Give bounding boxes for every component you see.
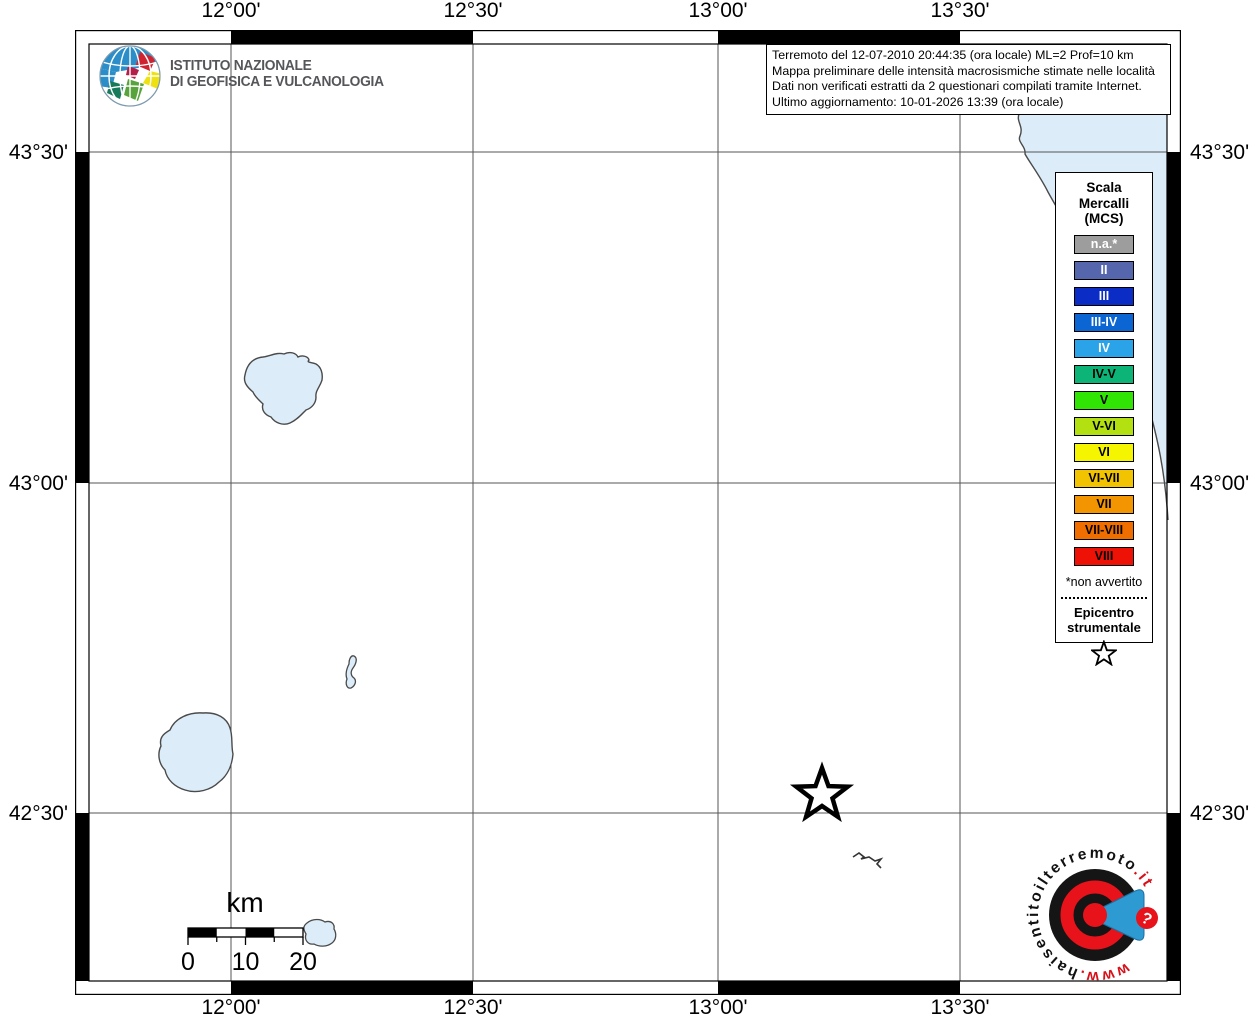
- axis-label-right-2: 43°00': [1190, 472, 1256, 496]
- axis-label-bottom-3: 13°00': [663, 996, 773, 1020]
- legend-separator: [1061, 597, 1147, 599]
- lake-vico: [304, 920, 336, 947]
- legend-title-line3: (MCS): [1056, 211, 1152, 227]
- ingv-name-line2: DI GEOFISICA E VULCANOLOGIA: [170, 75, 384, 91]
- ingv-name: ISTITUTO NAZIONALE DI GEOFISICA E VULCAN…: [170, 59, 384, 90]
- ingv-logo: ISTITUTO NAZIONALE DI GEOFISICA E VULCAN…: [98, 42, 428, 108]
- mercalli-legend: Scala Mercalli (MCS) n.a.*IIIIIIII-IVIVI…: [1055, 172, 1153, 643]
- scale-bar-tick-20: 20: [289, 948, 317, 976]
- axis-label-left-3: 42°30': [0, 802, 68, 826]
- map-canvas: km 0 10 20: [75, 30, 1181, 995]
- ingv-globe-icon: [98, 44, 162, 108]
- legend-title: Scala Mercalli (MCS): [1056, 180, 1152, 227]
- legend-title-line2: Mercalli: [1056, 196, 1152, 212]
- legend-footnote: *non avvertito: [1056, 575, 1152, 589]
- legend-item-V-VI: V-VI: [1074, 417, 1134, 436]
- axis-label-top-3: 13°00': [663, 0, 773, 23]
- legend-item-VII: VII: [1074, 495, 1134, 514]
- macroseismic-map: 12°00' 12°30' 13°00' 13°30' 12°00' 12°30…: [0, 0, 1256, 1024]
- axis-label-top-1: 12°00': [176, 0, 286, 23]
- legend-item-V: V: [1074, 391, 1134, 410]
- legend-item-II: II: [1074, 261, 1134, 280]
- legend-epicenter-star-icon: [1056, 640, 1152, 671]
- legend-epicenter-title: Epicentro strumentale: [1056, 605, 1152, 636]
- legend-item-III: III: [1074, 287, 1134, 306]
- legend-title-line1: Scala: [1056, 180, 1152, 196]
- ingv-name-line1: ISTITUTO NAZIONALE: [170, 59, 384, 75]
- axis-label-right-3: 42°30': [1190, 802, 1256, 826]
- legend-epicenter-line2: strumentale: [1056, 620, 1152, 636]
- scale-bar-tick-10: 10: [232, 948, 260, 976]
- legend-item-VI: VI: [1074, 443, 1134, 462]
- event-info-line2: Mappa preliminare delle intensità macros…: [772, 64, 1165, 80]
- axis-label-top-4: 13°30': [905, 0, 1015, 23]
- axis-label-bottom-1: 12°00': [176, 996, 286, 1020]
- legend-item-IV-V: IV-V: [1074, 365, 1134, 384]
- axis-label-left-2: 43°00': [0, 472, 68, 496]
- land-area: [89, 44, 1167, 981]
- axis-label-right-1: 43°30': [1190, 141, 1256, 165]
- legend-item-VIII: VIII: [1074, 547, 1134, 566]
- legend-item-IV: IV: [1074, 339, 1134, 358]
- axis-label-left-1: 43°30': [0, 141, 68, 165]
- legend-item-n.a.*: n.a.*: [1074, 235, 1134, 254]
- scale-bar-unit: km: [226, 887, 263, 918]
- site-logo-bullseye-center: [1083, 903, 1107, 927]
- event-info-line1: Terremoto del 12-07-2010 20:44:35 (ora l…: [772, 48, 1165, 64]
- event-info-line4: Ultimo aggiornamento: 10-01-2026 13:39 (…: [772, 95, 1165, 111]
- legend-epicenter-line1: Epicentro: [1056, 605, 1152, 621]
- legend-item-III-IV: III-IV: [1074, 313, 1134, 332]
- axis-label-bottom-2: 12°30': [418, 996, 528, 1020]
- legend-item-VII-VIII: VII-VIII: [1074, 521, 1134, 540]
- scale-bar-tick-0: 0: [181, 948, 195, 976]
- event-info-line3: Dati non verificati estratti da 2 questi…: [772, 79, 1165, 95]
- legend-items: n.a.*IIIIIIII-IVIVIV-VVV-VIVIVI-VIIVIIVI…: [1056, 235, 1152, 566]
- axis-label-top-2: 12°30': [418, 0, 528, 23]
- axis-label-bottom-4: 13°30': [905, 996, 1015, 1020]
- legend-item-VI-VII: VI-VII: [1074, 469, 1134, 488]
- event-info-box: Terremoto del 12-07-2010 20:44:35 (ora l…: [766, 44, 1171, 115]
